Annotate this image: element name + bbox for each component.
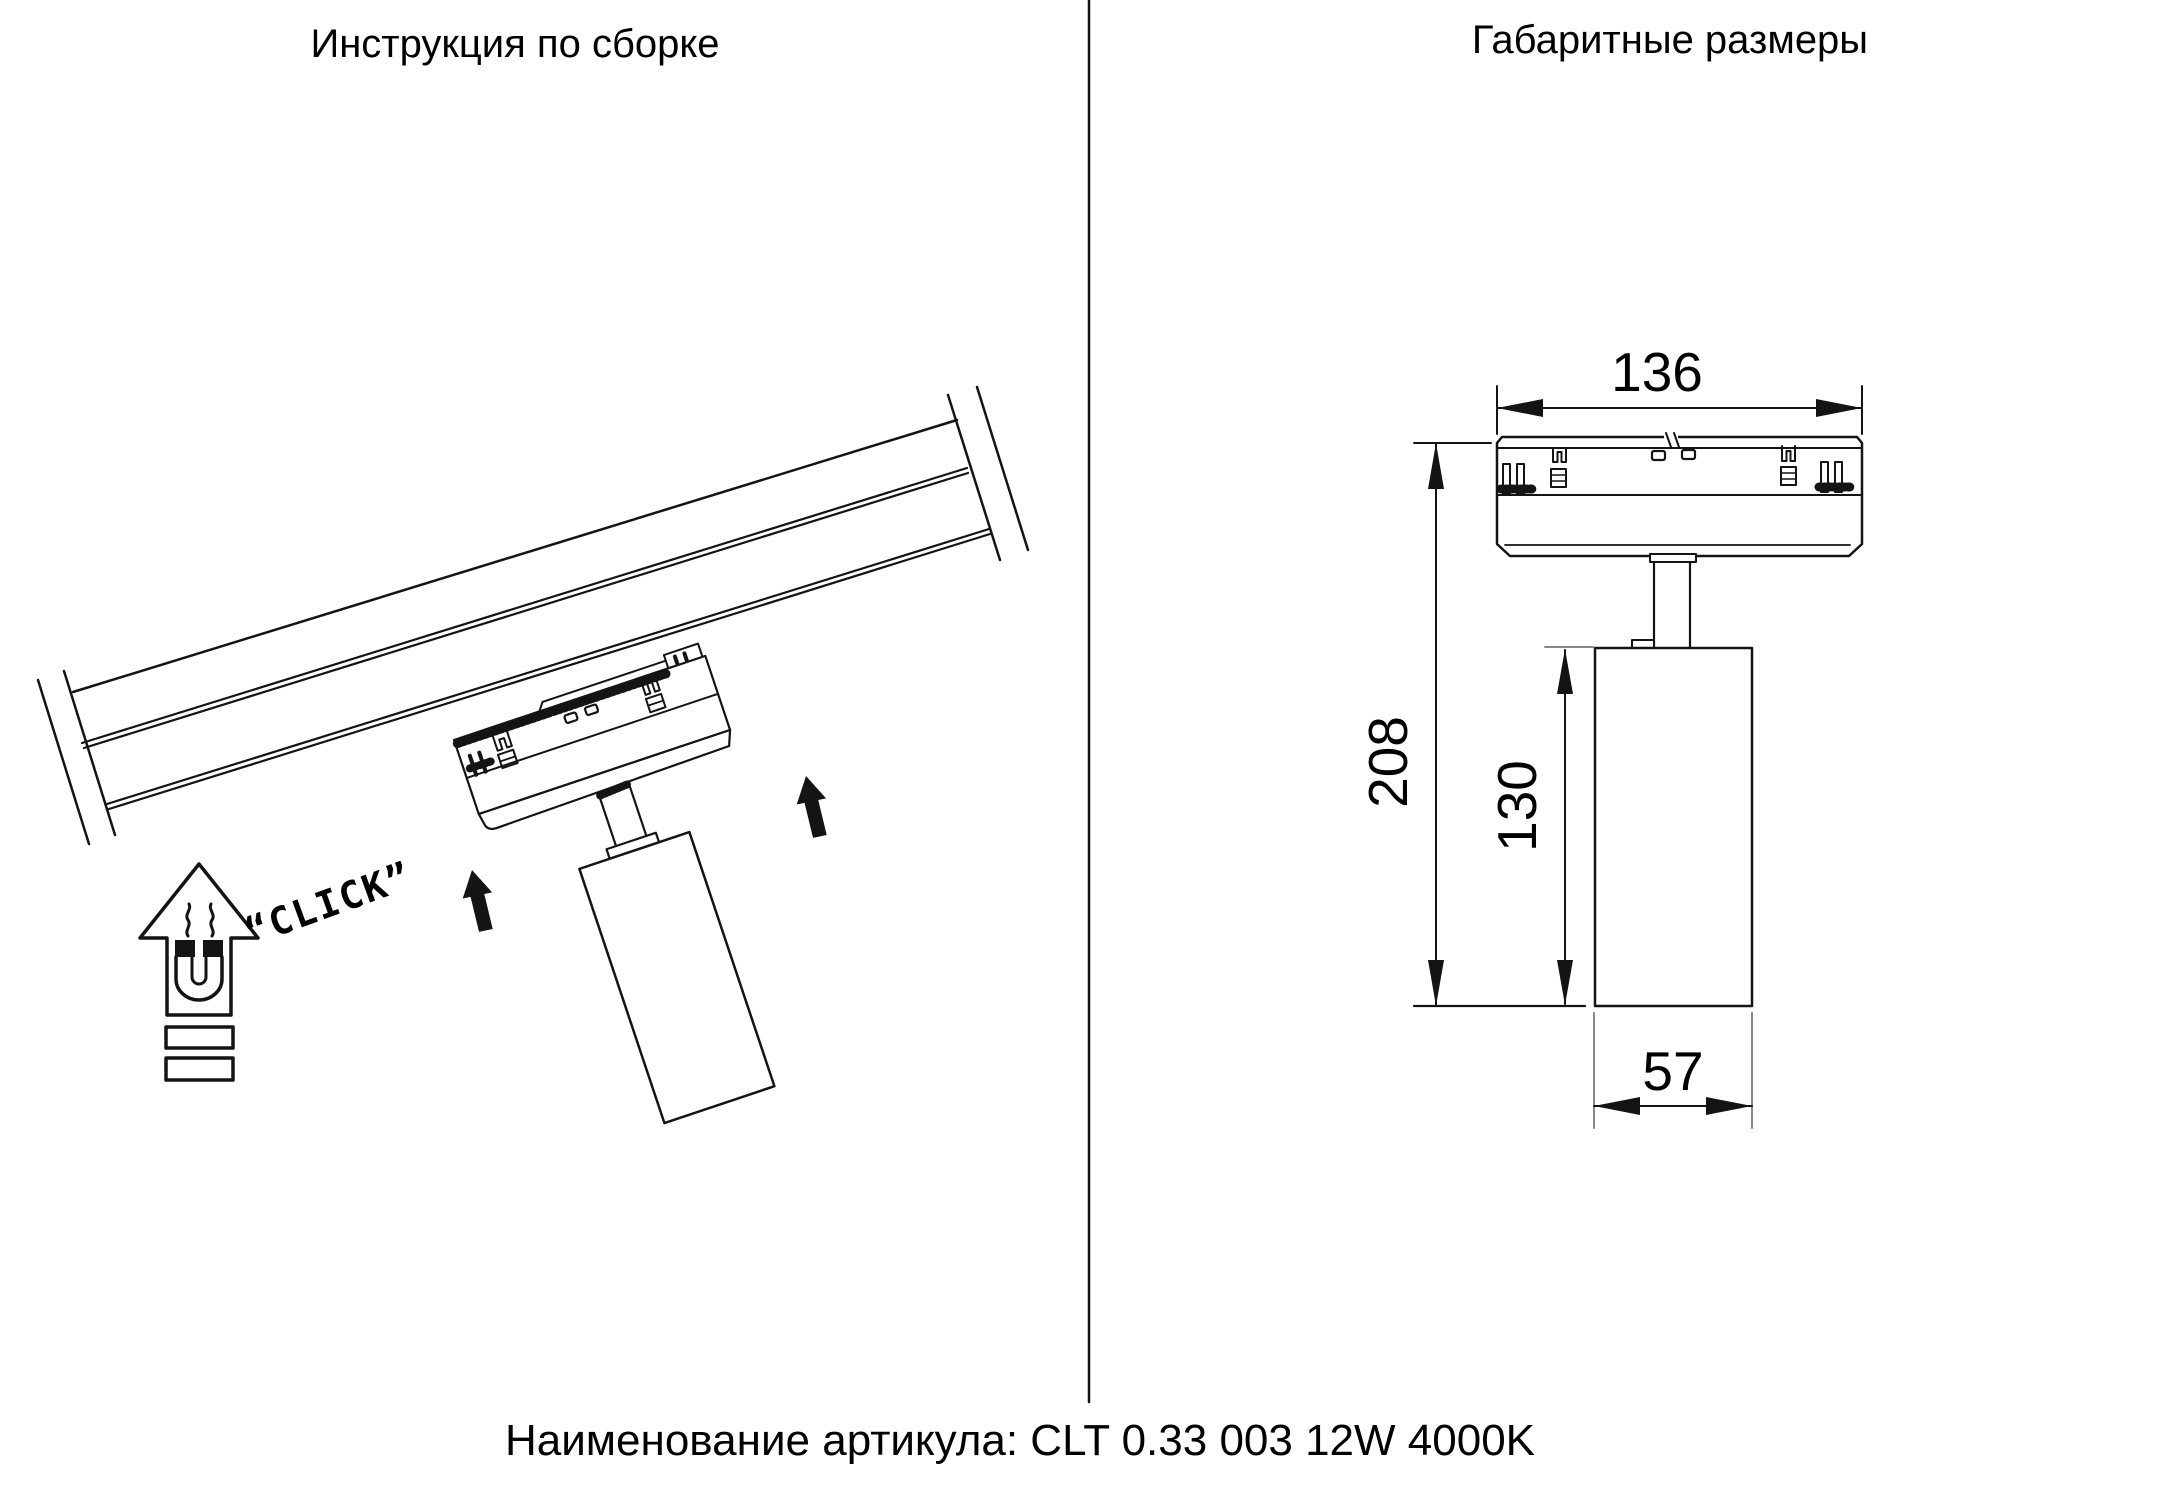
dim-body-width-value: 57 [1642, 1040, 1703, 1102]
assembly-and-dimensions-diagram: “CLICK” [0, 0, 2174, 1500]
dim-total-height-value: 208 [1357, 716, 1419, 808]
dim-adapter-front [1497, 433, 1862, 556]
magnet-arrow-icon [140, 864, 258, 1080]
dim-cylinder [1595, 648, 1752, 1006]
up-arrow-icon-right [791, 773, 833, 840]
fixture [450, 643, 842, 1148]
dim-130 [1545, 647, 1593, 1005]
dim-stem [1632, 554, 1696, 648]
click-label: “CLICK” [239, 853, 418, 954]
dims-drawing [1414, 386, 1862, 1128]
up-arrow-icon-left [457, 867, 499, 934]
article-label: Наименование артикула: CLT 0.33 003 12W … [470, 1416, 1570, 1466]
dim-adapter-width-value: 136 [1611, 341, 1703, 403]
dim-body-height-value: 130 [1486, 760, 1548, 852]
rail-end-cap-left [38, 671, 115, 844]
product-datasheet: Инструкция по сборке Габаритные размеры [0, 0, 2174, 1500]
cylinder [579, 832, 774, 1123]
